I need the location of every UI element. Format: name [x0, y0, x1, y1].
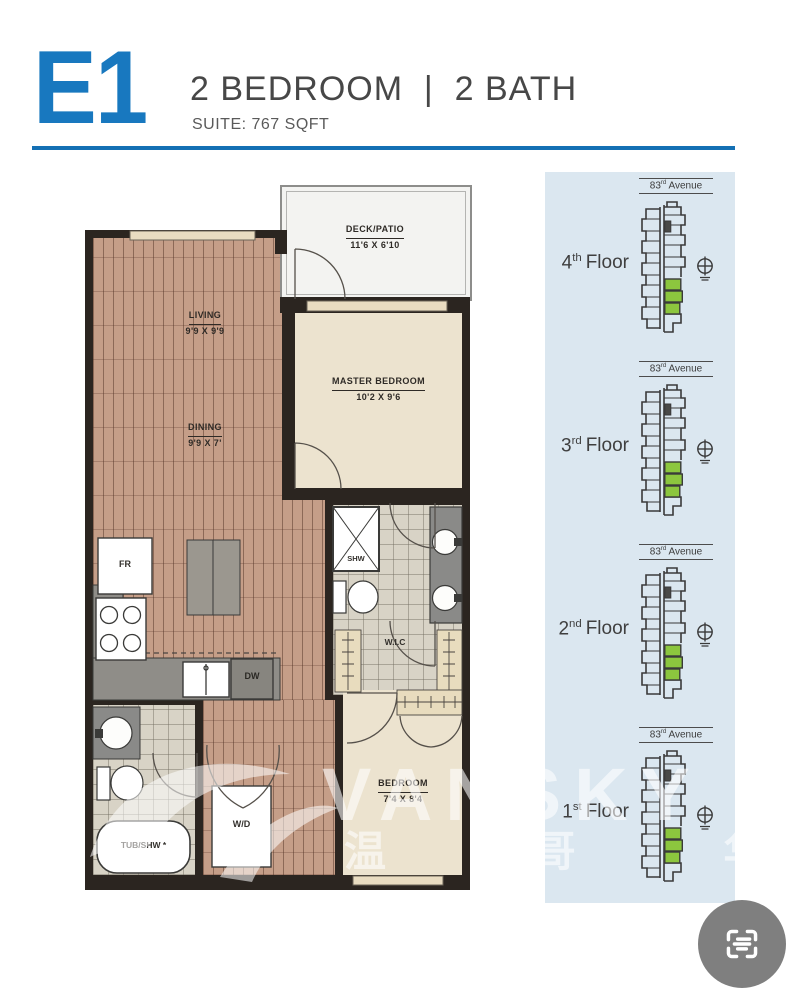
label-wic: W.I.C: [365, 637, 425, 647]
label-master: MASTER BEDROOM10'2 X 9'6: [301, 375, 456, 404]
floor-label-3: 3rdFloor: [553, 435, 629, 457]
avenue-label: 83rd Avenue: [639, 178, 713, 194]
label-dining: DINING9'9 X 7': [160, 421, 250, 450]
avenue-label: 83rd Avenue: [639, 544, 713, 560]
plan-title: 2 BEDROOM | 2 BATH: [190, 70, 577, 109]
watermark-logo: [70, 722, 350, 892]
room-living-dining: [93, 238, 282, 700]
floor-section-2: 83rd Avenue 2ndFloor: [545, 538, 735, 721]
page: E1 2 BEDROOM | 2 BATH SUITE: 767 SQFT: [0, 0, 800, 999]
compass-icon: [695, 439, 715, 465]
plan-suite-area: SUITE: 767 SQFT: [192, 116, 329, 134]
room-ensuite-wic: [333, 505, 462, 695]
building-keyplan: [631, 194, 695, 344]
floor-section-3: 83rd Avenue 3rdFloor: [545, 355, 735, 538]
label-dishwasher: DW: [231, 671, 273, 681]
label-shower: SHW: [333, 554, 379, 563]
building-keyplan: [631, 560, 695, 710]
wall-deck-master: [280, 297, 470, 313]
floor-label-4: 4thFloor: [553, 252, 629, 274]
label-living: LIVING9'9 X 9'9: [160, 309, 250, 338]
floor-section-4: 83rd Avenue 4thFloor: [545, 172, 735, 355]
scan-text-button[interactable]: [698, 900, 786, 988]
hall-strip: [282, 500, 325, 700]
watermark-cjk: 温 哥 华: [344, 818, 800, 879]
plan-code: E1: [33, 36, 146, 140]
floor-label-2: 2ndFloor: [553, 618, 629, 640]
compass-icon: [695, 622, 715, 648]
scan-text-icon: [716, 918, 768, 970]
avenue-label: 83rd Avenue: [639, 361, 713, 377]
wall-stub: [275, 230, 287, 254]
header-divider: [32, 146, 735, 150]
label-fridge: FR: [98, 559, 152, 569]
avenue-label: 83rd Avenue: [639, 727, 713, 743]
building-keyplan: [631, 377, 695, 527]
label-deck: DECK/PATIO11'6 X 6'10: [315, 223, 435, 252]
compass-icon: [695, 256, 715, 282]
